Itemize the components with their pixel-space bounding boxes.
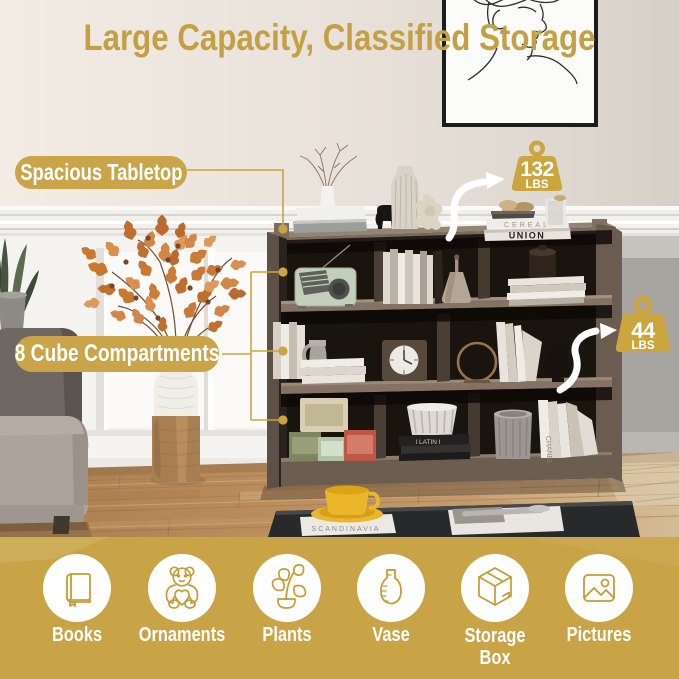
svg-text:LBS: LBS	[526, 179, 549, 191]
svg-text:LBS: LBS	[632, 340, 655, 352]
svg-text:CEREAL: CEREAL	[504, 222, 550, 229]
svg-text:132: 132	[520, 158, 554, 181]
svg-text:UNION: UNION	[509, 231, 546, 241]
svg-text:CHANEL: CHANEL	[544, 436, 552, 465]
svg-text:SCANDINAVIA: SCANDINAVIA	[312, 526, 381, 533]
svg-text:I LATIN I: I LATIN I	[415, 439, 440, 446]
